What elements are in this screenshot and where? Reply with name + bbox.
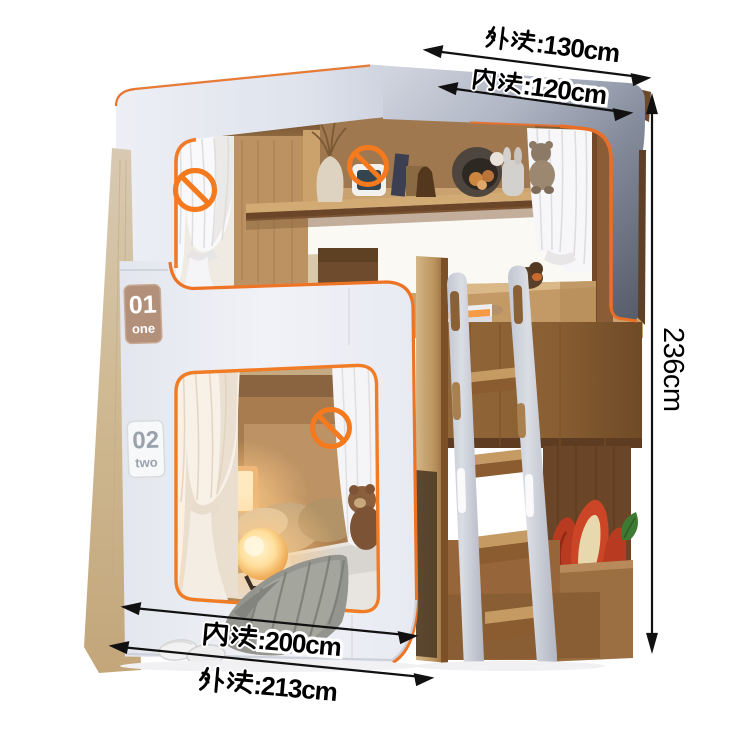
svg-text:two: two — [135, 455, 158, 471]
svg-text:02: 02 — [132, 427, 160, 455]
svg-text:236cm: 236cm — [657, 327, 689, 412]
svg-text:01: 01 — [128, 291, 157, 320]
svg-text:one: one — [132, 321, 156, 337]
